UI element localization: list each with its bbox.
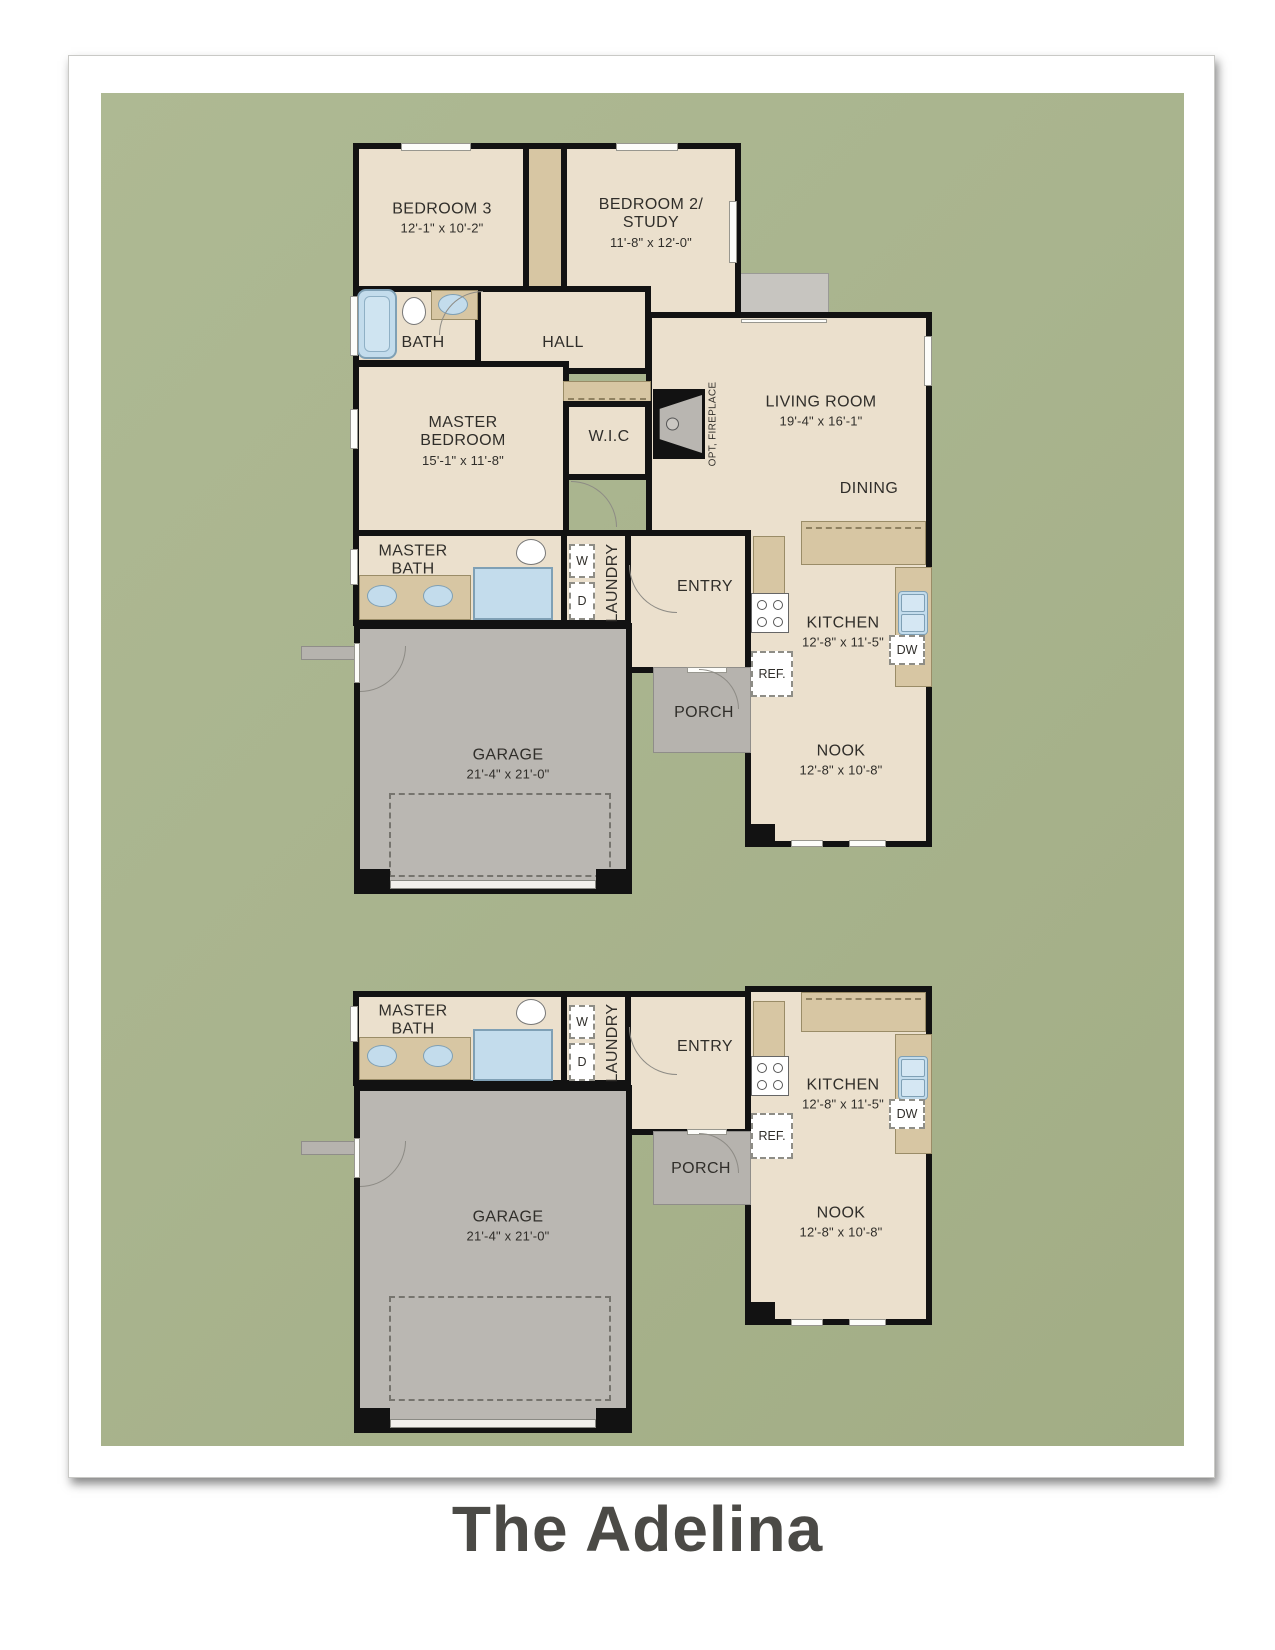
window xyxy=(849,840,886,847)
t-fireplace-icon xyxy=(653,389,705,459)
window xyxy=(849,1319,886,1326)
window xyxy=(924,336,932,386)
window xyxy=(350,409,358,449)
b-shower-icon xyxy=(473,1029,553,1081)
window xyxy=(350,1006,358,1042)
t-nook-post xyxy=(751,824,775,847)
burner-icon xyxy=(757,617,767,627)
label-kitchen: KITCHEN 12'-8" x 11'-5" xyxy=(802,614,884,649)
b-washer-label: W xyxy=(576,1015,588,1029)
t-mbath-sink2-icon xyxy=(423,585,453,607)
label-entry: ENTRY xyxy=(677,578,733,596)
t-stove-icon xyxy=(751,593,789,633)
room-name: KITCHEN xyxy=(802,1076,884,1094)
shelf-dash xyxy=(568,398,646,400)
label-garage: GARAGE 21'-4" x 21'-0" xyxy=(467,746,550,781)
room-name: PORCH xyxy=(674,704,734,722)
room-name: W.I.C xyxy=(588,428,629,446)
room-dims: 21'-4" x 21'-0" xyxy=(467,767,550,782)
room-dims: 12'-8" x 11'-5" xyxy=(802,635,884,650)
label-garage: GARAGE 21'-4" x 21'-0" xyxy=(467,1208,550,1243)
b-dishwasher-box: DW xyxy=(889,1099,925,1129)
room-dims: 11'-8" x 12'-0" xyxy=(599,235,703,250)
room-name: DINING xyxy=(840,480,898,498)
room-name: NOOK xyxy=(800,1204,883,1222)
t-garage-post-right xyxy=(596,869,632,894)
page: W D DW REF. xyxy=(0,0,1275,1650)
basin xyxy=(901,614,925,632)
window xyxy=(616,143,678,151)
floorplan-card: W D DW REF. xyxy=(68,55,1215,1478)
t-washer-box: W xyxy=(569,544,595,578)
sliding-door xyxy=(741,319,827,323)
t-garage-stub xyxy=(301,646,359,660)
label-opt-fireplace: OPT, FIREPLACE xyxy=(708,382,719,467)
t-dishwasher-box: DW xyxy=(889,635,925,665)
t-mbath-sink1-icon xyxy=(367,585,397,607)
peninsula-dash xyxy=(806,527,921,529)
label-porch: PORCH xyxy=(671,1160,731,1178)
t-kitchen-peninsula xyxy=(801,521,926,565)
label-bedroom3: BEDROOM 3 12'-1" x 10'-2" xyxy=(392,200,492,235)
room-name: BEDROOM 3 xyxy=(392,200,492,218)
burner-icon xyxy=(773,1063,783,1073)
t-garage-door-sill xyxy=(390,880,596,889)
b-dryer-label: D xyxy=(577,1055,586,1069)
window xyxy=(791,1319,823,1326)
t-washer-label: W xyxy=(576,554,588,568)
burner-icon xyxy=(757,1063,767,1073)
t-ref-label: REF. xyxy=(758,667,785,681)
fireplace-insert xyxy=(656,395,702,453)
t-dryer-box: D xyxy=(569,582,595,620)
b-refrigerator-box: REF. xyxy=(751,1113,793,1159)
room-dims: 15'-1" x 11'-8" xyxy=(420,453,505,468)
room-name: HALL xyxy=(542,334,584,352)
window xyxy=(791,840,823,847)
t-dryer-label: D xyxy=(577,594,586,608)
label-master-bath: MASTER BATH xyxy=(378,543,447,580)
window xyxy=(729,201,737,263)
label-living: LIVING ROOM 19'-4" x 16'-1" xyxy=(765,393,876,428)
b-garage-post-right xyxy=(596,1408,632,1433)
floorplan-canvas: W D DW REF. xyxy=(101,93,1184,1446)
basin xyxy=(901,1059,925,1077)
room-name: ENTRY xyxy=(677,1038,733,1056)
t-kitchen-sink-icon xyxy=(898,591,928,635)
label-master-bedroom: MASTER BEDROOM 15'-1" x 11'-8" xyxy=(420,414,505,468)
b-nook-post xyxy=(751,1302,775,1325)
room-name: LIVING ROOM xyxy=(765,393,876,411)
t-dw-label: DW xyxy=(897,643,918,657)
b-garage-stub xyxy=(301,1141,359,1155)
room-name: BATH xyxy=(401,334,444,352)
b-room-entry xyxy=(625,991,751,1135)
room-name: GARAGE xyxy=(467,746,550,764)
room-dims: 12'-8" x 11'-5" xyxy=(802,1097,884,1112)
burner-icon xyxy=(773,617,783,627)
b-mbath-toilet-icon xyxy=(516,999,546,1025)
room-name: MASTER BEDROOM xyxy=(420,414,505,451)
t-garage-door-dashed xyxy=(389,793,611,877)
b-garage-post-left xyxy=(354,1408,390,1433)
room-dims: 12'-8" x 10'-8" xyxy=(800,763,883,778)
b-stove-icon xyxy=(751,1056,789,1096)
t-bathtub-icon xyxy=(357,289,397,359)
room-dims: 19'-4" x 16'-1" xyxy=(765,414,876,429)
b-kitchen-sink-icon xyxy=(898,1056,928,1100)
room-name: KITCHEN xyxy=(802,614,884,632)
label-kitchen: KITCHEN 12'-8" x 11'-5" xyxy=(802,1076,884,1111)
plan-title: The Adelina xyxy=(0,1492,1275,1566)
burner-icon xyxy=(773,600,783,610)
room-dims: 12'-1" x 10'-2" xyxy=(392,221,492,236)
t-mbath-toilet-icon xyxy=(516,539,546,565)
peninsula-dash xyxy=(806,998,921,1000)
window xyxy=(401,143,471,151)
b-washer-box: W xyxy=(569,1005,595,1039)
room-name: MASTER BATH xyxy=(378,1003,447,1040)
basin xyxy=(901,594,925,612)
label-laundry: LAUNDRY xyxy=(604,1004,622,1083)
room-dims: 21'-4" x 21'-0" xyxy=(467,1229,550,1244)
t-bath-toilet-icon xyxy=(402,297,426,325)
burner-icon xyxy=(757,1080,767,1090)
label-nook: NOOK 12'-8" x 10'-8" xyxy=(800,1204,883,1239)
basin xyxy=(901,1079,925,1097)
b-dryer-box: D xyxy=(569,1043,595,1081)
label-master-bath: MASTER BATH xyxy=(378,1003,447,1040)
label-bath: BATH xyxy=(401,334,444,352)
t-room-entry xyxy=(625,530,751,673)
t-shower-icon xyxy=(473,567,553,620)
room-dims: 12'-8" x 10'-8" xyxy=(800,1225,883,1240)
label-dining: DINING xyxy=(840,480,898,498)
t-refrigerator-box: REF. xyxy=(751,651,793,697)
room-name: GARAGE xyxy=(467,1208,550,1226)
window xyxy=(350,549,358,585)
window xyxy=(350,296,358,356)
door-arc xyxy=(571,481,617,527)
label-bedroom2: BEDROOM 2/ STUDY 11'-8" x 12'-0" xyxy=(599,196,703,250)
label-nook: NOOK 12'-8" x 10'-8" xyxy=(800,742,883,777)
label-porch: PORCH xyxy=(674,704,734,722)
b-kitchen-peninsula xyxy=(801,992,926,1032)
label-wic: W.I.C xyxy=(588,428,629,446)
b-mbath-sink2-icon xyxy=(423,1045,453,1067)
room-name: ENTRY xyxy=(677,578,733,596)
b-dw-label: DW xyxy=(897,1107,918,1121)
label-entry: ENTRY xyxy=(677,1038,733,1056)
b-mbath-sink1-icon xyxy=(367,1045,397,1067)
label-hall: HALL xyxy=(542,334,584,352)
room-name: MASTER BATH xyxy=(378,543,447,580)
room-name: PORCH xyxy=(671,1160,731,1178)
t-garage-post-left xyxy=(354,869,390,894)
burner-icon xyxy=(773,1080,783,1090)
fireplace-circle xyxy=(666,418,679,431)
room-name: NOOK xyxy=(800,742,883,760)
room-name: BEDROOM 2/ STUDY xyxy=(599,196,703,233)
b-ref-label: REF. xyxy=(758,1129,785,1143)
burner-icon xyxy=(757,600,767,610)
b-garage-door-dashed xyxy=(389,1296,611,1401)
label-laundry: LAUNDRY xyxy=(604,544,622,623)
b-garage-door-sill xyxy=(390,1419,596,1428)
